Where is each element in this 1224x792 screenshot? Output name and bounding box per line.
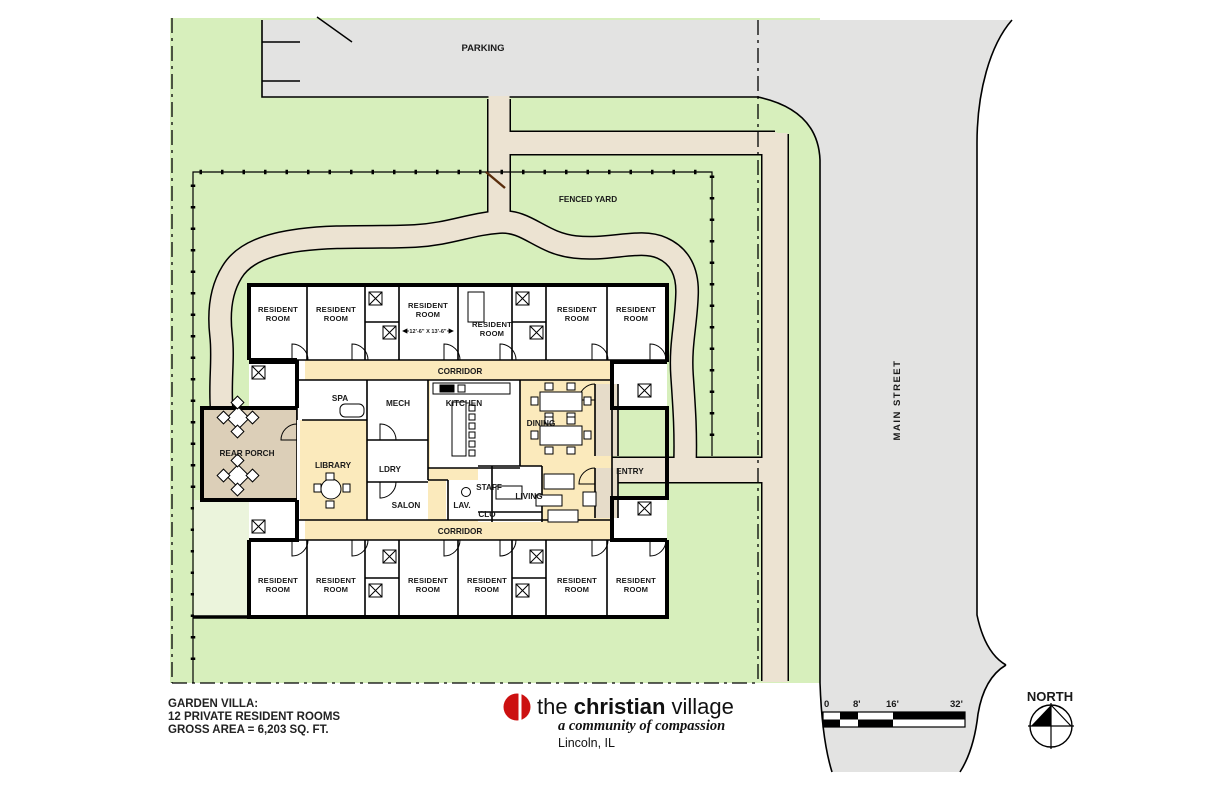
corridor-bottom-label: CORRIDOR (438, 527, 483, 536)
title-block-line1: GARDEN VILLA: (168, 698, 258, 710)
north-arrow: NORTH (1027, 689, 1074, 749)
scale-label-8: 8' (853, 699, 861, 710)
parking-label: PARKING (461, 43, 504, 54)
curb-line-east-upper (977, 20, 1012, 665)
scale-label-32: 32' (950, 699, 963, 710)
patio-strip (194, 500, 249, 617)
north-label: NORTH (1027, 689, 1073, 704)
logo: the christian village a community of com… (504, 692, 734, 750)
logo-city: Lincoln, IL (558, 736, 615, 750)
clo-label: CLO (478, 510, 496, 519)
scale-label-0: 0 (824, 699, 829, 710)
logo-mark-slash (519, 692, 522, 721)
fenced-yard-label: FENCED YARD (559, 195, 617, 204)
site-plan-drawing: PARKING FENCED YARD MAIN STREET CORRIDOR… (0, 0, 1224, 792)
rear-porch-label: REAR PORCH (219, 449, 274, 458)
lav-label: LAV. (453, 501, 470, 510)
room-dimension-label: 12'-6" X 13'-6" (409, 329, 447, 335)
title-block-line3: GROSS AREA = 6,203 SQ. FT. (168, 724, 329, 736)
ldry-label: LDRY (379, 465, 402, 474)
logo-tagline: a community of compassion (558, 718, 725, 734)
logo-title: the christian village (537, 694, 734, 719)
dining-label: DINING (527, 419, 556, 428)
scale-bar-segments (823, 712, 965, 727)
salon-label: SALON (392, 501, 421, 510)
library-label: LIBRARY (315, 461, 352, 470)
staff-label: STAFF (476, 483, 502, 492)
corridor-top-label: CORRIDOR (438, 367, 483, 376)
kitchen-label: KITCHEN (446, 399, 482, 408)
main-street-label: MAIN STREET (892, 360, 903, 441)
mech-label: MECH (386, 399, 410, 408)
spa-label: SPA (332, 394, 348, 403)
logo-mark-icon (504, 694, 531, 721)
title-block-line2: 12 PRIVATE RESIDENT ROOMS (168, 711, 340, 723)
site-plan-page: PARKING FENCED YARD MAIN STREET CORRIDOR… (0, 0, 1224, 792)
scale-label-16: 16' (886, 699, 899, 710)
entry-label: ENTRY (616, 467, 644, 476)
title-block: GARDEN VILLA: 12 PRIVATE RESIDENT ROOMS … (168, 698, 340, 736)
living-label: LIVING (515, 492, 542, 501)
